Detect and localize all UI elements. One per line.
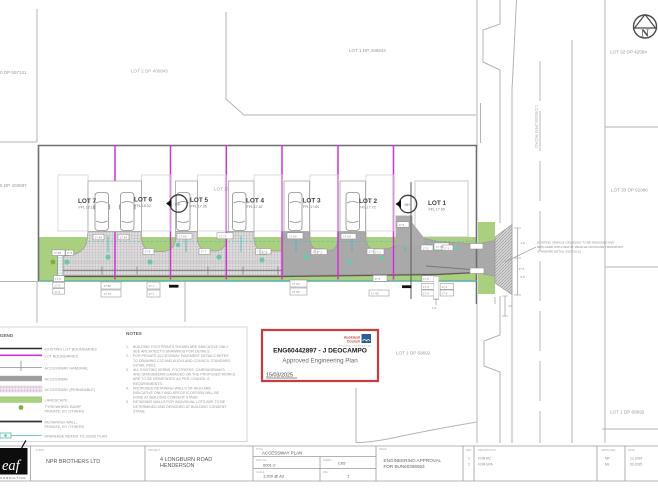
svg-text:LOT 1: LOT 1: [428, 200, 447, 207]
svg-text:Approved Engineering Plan: Approved Engineering Plan: [282, 358, 358, 365]
svg-text:EXISTING VEHICLE CROSSING TO B: EXISTING VEHICLE CROSSING TO BE REMOVED …: [537, 241, 615, 245]
svg-text:BUILDING FOOTPRINTS SHOWN ARE: BUILDING FOOTPRINTS SHOWN ARE INDICATIVE…: [133, 345, 229, 349]
svg-text:17.6: 17.6: [55, 277, 61, 281]
svg-text:03.2025: 03.2025: [630, 462, 642, 466]
svg-text:2.: 2.: [126, 354, 129, 358]
svg-text:PROJECT: PROJECT: [148, 448, 161, 452]
svg-text:17.4: 17.4: [442, 285, 448, 289]
svg-text:17.80: 17.80: [104, 284, 112, 288]
svg-text:LANDSCAPE: LANDSCAPE: [45, 398, 68, 402]
svg-text:1.0: 1.0: [432, 306, 437, 310]
svg-text:17.7: 17.7: [149, 284, 155, 288]
svg-text:FFL 17.95: FFL 17.95: [191, 205, 207, 209]
svg-text:APPROVED: APPROVED: [601, 448, 616, 452]
svg-text:17.8: 17.8: [145, 250, 151, 254]
svg-text:EXISTING LOT BOUNDARIES: EXISTING LOT BOUNDARIES: [45, 348, 98, 352]
svg-text:FFL 17.65: FFL 17.65: [429, 208, 445, 212]
svg-text:NP: NP: [605, 457, 610, 461]
svg-text:3.: 3.: [126, 368, 129, 372]
svg-text:MH: MH: [175, 203, 181, 207]
svg-text:DETAIL RD01.: DETAIL RD01.: [133, 363, 156, 367]
svg-text:LOT 7: LOT 7: [78, 198, 97, 205]
svg-text:ACCESSWAY: ACCESSWAY: [45, 377, 69, 381]
svg-text:5.: 5.: [126, 400, 129, 404]
svg-text:17.4: 17.4: [54, 290, 60, 294]
svg-text:SHEET: SHEET: [323, 458, 332, 462]
svg-text:FFL 17.87: FFL 17.87: [247, 205, 263, 209]
svg-text:eaf: eaf: [2, 458, 22, 474]
svg-text:LOT 4: LOT 4: [246, 198, 265, 205]
svg-text:FOR BUN60396953: FOR BUN60396953: [384, 464, 426, 469]
svg-text:LOT 2: LOT 2: [359, 198, 378, 205]
svg-text:17.45: 17.45: [371, 292, 379, 296]
svg-text:17.4: 17.4: [442, 292, 448, 296]
svg-text:17.88: 17.88: [54, 251, 62, 255]
svg-text:17.5: 17.5: [317, 250, 323, 254]
svg-text:LOT 6: LOT 6: [134, 197, 153, 204]
svg-text:0 DP 597141: 0 DP 597141: [0, 70, 27, 75]
svg-text:SEE ARCHITECT'S DRAWINGS FOR D: SEE ARCHITECT'S DRAWINGS FOR DETAILS.: [133, 350, 211, 354]
svg-text:FFL 17.80: FFL 17.80: [303, 205, 319, 209]
svg-text:15/03/2025: 15/03/2025: [266, 373, 293, 379]
svg-text:DESCRIPTION: DESCRIPTION: [478, 448, 496, 452]
svg-text:17.88: 17.88: [95, 235, 103, 239]
svg-text:6001-2: 6001-2: [263, 463, 276, 468]
svg-text:17.80: 17.80: [179, 235, 187, 239]
svg-text:17.72: 17.72: [219, 234, 227, 238]
svg-text:1: 1: [468, 457, 470, 461]
svg-text:DONE AT BUILDING CONSENT STAGE: DONE AT BUILDING CONSENT STAGE.: [133, 396, 199, 400]
svg-text:DRAINAGE REFER TO 32006 PLAN: DRAINAGE REFER TO 32006 PLAN: [45, 435, 108, 439]
svg-text:DETERMINED AND DESIGNED AT BUI: DETERMINED AND DESIGNED AT BUILDING CONS…: [133, 405, 227, 409]
svg-text:Council: Council: [347, 340, 360, 344]
svg-text:ALL EXISTING KERBS, FOOTPATHS,: ALL EXISTING KERBS, FOOTPATHS, CARRIAGEW…: [133, 368, 225, 372]
svg-text:RETAINING WALL,: RETAINING WALL,: [45, 420, 78, 424]
svg-text:LOT 5: LOT 5: [190, 197, 209, 204]
svg-text:FOR PRIVATE ACCESSWAY PAVEMENT: FOR PRIVATE ACCESSWAY PAVEMENT DETAILS R…: [133, 354, 229, 358]
svg-text:17.6: 17.6: [369, 250, 375, 254]
svg-text:17.5: 17.5: [54, 284, 60, 288]
svg-text:DWG No.: DWG No.: [256, 458, 267, 462]
svg-text:ML: ML: [605, 462, 610, 466]
svg-text:N: N: [641, 28, 649, 40]
svg-text:NPR BROTHERS LTD: NPR BROTHERS LTD: [46, 459, 100, 465]
svg-text:ENG60442897 - J DEOCAMPO: ENG60442897 - J DEOCAMPO: [273, 348, 367, 355]
svg-text:17.84: 17.84: [120, 235, 128, 239]
svg-text:17.6: 17.6: [262, 250, 268, 254]
svg-text:LOT 1 DP 406843: LOT 1 DP 406843: [349, 48, 386, 53]
svg-text:ARE TO BE REINSTATED AS PER CO: ARE TO BE REINSTATED AS PER COUNCIL'S: [133, 377, 210, 381]
svg-text:REV: REV: [466, 448, 472, 452]
svg-text:17.8: 17.8: [67, 251, 73, 255]
svg-text:17.5: 17.5: [519, 267, 525, 271]
svg-text:LOT 32 DP 42584: LOT 32 DP 42584: [610, 50, 647, 55]
svg-text:17.60: 17.60: [292, 282, 300, 286]
svg-text:C05: C05: [338, 461, 346, 466]
svg-text:12.2024: 12.2024: [630, 457, 642, 461]
svg-text:17.5: 17.5: [375, 250, 381, 254]
svg-text:1.8: 1.8: [521, 241, 526, 245]
svg-text:17.5: 17.5: [423, 246, 429, 250]
svg-text:LOT 1 DP 58692: LOT 1 DP 58692: [396, 351, 431, 356]
svg-text:REQUIREMENTS.: REQUIREMENTS.: [133, 382, 163, 386]
svg-text:17.64: 17.64: [289, 234, 297, 238]
svg-text:ACCESSWAY HANDRAIL: ACCESSWAY HANDRAIL: [45, 367, 89, 371]
svg-text:LOT BOUNDARIES: LOT BOUNDARIES: [45, 354, 79, 358]
svg-text:5 DP 403687: 5 DP 403687: [0, 183, 27, 188]
svg-text:2: 2: [468, 462, 470, 466]
svg-text:TO DRAWING C02 AND AUCKLAND CO: TO DRAWING C02 AND AUCKLAND COUNCIL STAN…: [133, 359, 230, 363]
svg-text:ACCESSWAY PLAN: ACCESSWAY PLAN: [262, 451, 302, 456]
svg-text:LOT 1 DP 58692: LOT 1 DP 58692: [610, 410, 645, 415]
svg-text:17.5: 17.5: [399, 223, 405, 227]
svg-text:17.75: 17.75: [104, 292, 112, 296]
svg-text:4.0: 4.0: [508, 304, 513, 308]
svg-text:CLIENT: CLIENT: [36, 448, 46, 452]
svg-text:17.4: 17.4: [423, 285, 429, 289]
svg-text:NOTES: NOTES: [126, 331, 142, 336]
svg-text:17.5: 17.5: [375, 277, 381, 281]
svg-text:HENDERSON: HENDERSON: [160, 463, 195, 469]
svg-text:17.7: 17.7: [201, 250, 207, 254]
svg-text:PRIVATE, BY OTHERS: PRIVATE, BY OTHERS: [45, 409, 85, 413]
svg-text:LONGBURN ROAD: LONGBURN ROAD: [534, 105, 539, 149]
svg-text:17.7: 17.7: [149, 292, 155, 296]
svg-text:STAGE.: STAGE.: [133, 409, 146, 413]
svg-text:INDICATIVE ONLY AND SPECIFIC D: INDICATIVE ONLY AND SPECIFIC DESIGN WILL…: [133, 391, 220, 395]
svg-text:17.5: 17.5: [444, 246, 450, 250]
svg-text:1:200 @ A3: 1:200 @ A3: [263, 474, 285, 479]
svg-text:1.: 1.: [126, 345, 129, 349]
svg-text:FOR RC: FOR RC: [478, 457, 492, 461]
svg-text:LOT 2 DP 406843: LOT 2 DP 406843: [131, 69, 168, 74]
svg-text:REV: REV: [323, 470, 329, 474]
svg-text:4.: 4.: [126, 386, 129, 390]
svg-text:17.5: 17.5: [423, 277, 429, 281]
svg-text:LEGEND: LEGEND: [0, 333, 14, 338]
svg-text:FFL 18.10: FFL 18.10: [79, 206, 95, 210]
svg-text:MH: MH: [405, 203, 411, 207]
svg-text:REPLACED WITH NEW AT VEHICLE C: REPLACED WITH NEW AT VEHICLE CROSSING TR…: [537, 245, 624, 249]
svg-text:LOT 3: LOT 3: [303, 198, 322, 205]
svg-text:PRIVATE, BY OTHERS: PRIVATE, BY OTHERS: [45, 425, 85, 429]
svg-text:PROPOSED RETAINING WALLS OF HI: PROPOSED RETAINING WALLS OF HIGH ARE: [133, 386, 211, 390]
svg-text:STANDARD DETAIL SS07/10-12: STANDARD DETAIL SS07/10-12: [537, 250, 581, 254]
svg-text:TYRE/WHEEL BUMP,: TYRE/WHEEL BUMP,: [45, 405, 82, 409]
svg-text:FFL 18.02: FFL 18.02: [135, 204, 151, 208]
svg-text:17.4: 17.4: [423, 292, 429, 296]
svg-text:FFL 17.72: FFL 17.72: [360, 206, 376, 210]
svg-text:LOT 33 DP 52986: LOT 33 DP 52986: [611, 188, 648, 193]
svg-text:RETAINING WALLS FOR INDIVIDUAL: RETAINING WALLS FOR INDIVIDUAL LOTS ARE …: [133, 400, 226, 404]
svg-text:ISSUE: ISSUE: [379, 447, 387, 451]
svg-text:17.55: 17.55: [292, 290, 300, 294]
svg-text:AND GRASS/BERM DAMAGED ON THE: AND GRASS/BERM DAMAGED ON THE PROPOSED W…: [133, 373, 236, 377]
svg-text:ENGINEERING APPROVAL: ENGINEERING APPROVAL: [384, 458, 442, 463]
svg-text:FOR EPA: FOR EPA: [478, 462, 493, 466]
svg-text:ACCESSWAY (PERMEABLE): ACCESSWAY (PERMEABLE): [45, 388, 96, 392]
svg-text:17.60: 17.60: [343, 235, 351, 239]
svg-text:5.6: 5.6: [521, 275, 526, 279]
svg-text:DATE: DATE: [628, 448, 635, 452]
svg-text:CONSULTING: CONSULTING: [1, 476, 27, 480]
